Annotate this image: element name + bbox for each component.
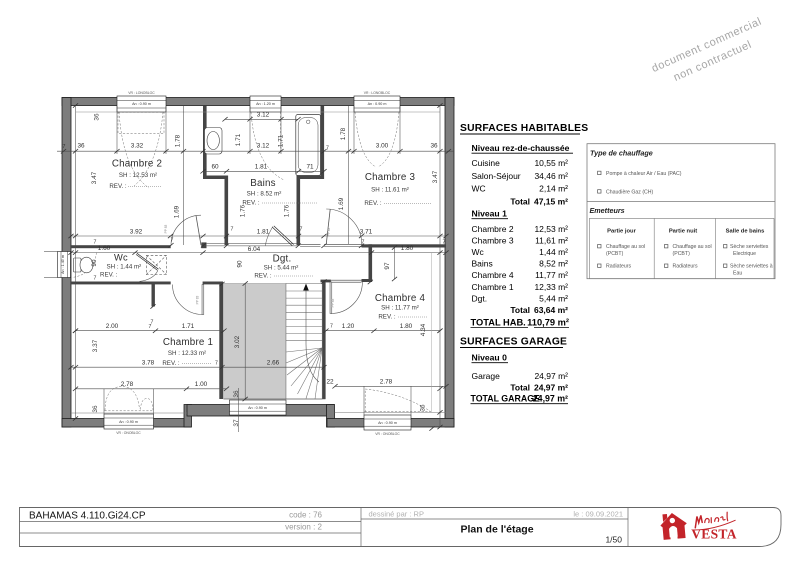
svg-text:36: 36 <box>94 113 101 121</box>
svg-text:Wc: Wc <box>114 253 128 263</box>
svg-text:Chambre 2: Chambre 2 <box>472 224 514 234</box>
svg-text:1.69: 1.69 <box>338 197 345 210</box>
svg-text:36: 36 <box>77 142 85 149</box>
svg-text:version : 2: version : 2 <box>285 523 322 532</box>
svg-text:SH : 12.53 m²: SH : 12.53 m² <box>119 172 157 179</box>
svg-text:Type de chauffage: Type de chauffage <box>590 149 653 158</box>
svg-text:Salle de bains: Salle de bains <box>726 229 765 235</box>
svg-text:VR : LONOBLOC: VR : LONOBLOC <box>364 91 391 95</box>
svg-text:24,97 m²: 24,97 m² <box>533 394 568 404</box>
svg-text:12,33 m²: 12,33 m² <box>534 282 568 292</box>
svg-text:12,53 m²: 12,53 m² <box>534 224 568 234</box>
svg-text:le : 09.09.2021: le : 09.09.2021 <box>573 510 623 519</box>
svg-text:PP 83: PP 83 <box>196 295 200 304</box>
svg-text:3.02: 3.02 <box>234 335 241 348</box>
svg-text:90: 90 <box>91 259 98 267</box>
svg-text:Chauffage au sol: Chauffage au sol <box>606 244 645 250</box>
svg-text:An : 0.90 m: An : 0.90 m <box>119 420 138 424</box>
svg-text:Total: Total <box>510 196 530 206</box>
svg-text:BAHAMAS 4.110.Gi24.CP: BAHAMAS 4.110.Gi24.CP <box>29 511 146 522</box>
svg-text:An : 1.40 m: An : 1.40 m <box>61 255 65 274</box>
svg-text:PP 83: PP 83 <box>164 224 168 233</box>
svg-text:6.04: 6.04 <box>248 246 261 253</box>
svg-text:Radiateurs: Radiateurs <box>606 264 631 270</box>
svg-text:1,44 m²: 1,44 m² <box>539 247 568 257</box>
svg-text:Sèche serviettes à: Sèche serviettes à <box>730 264 773 270</box>
svg-text:3.12: 3.12 <box>257 112 270 119</box>
svg-text:Salon-Séjour: Salon-Séjour <box>472 171 521 181</box>
svg-text:2.66: 2.66 <box>267 359 280 366</box>
svg-text:Chambre 2: Chambre 2 <box>112 159 162 170</box>
svg-text:TOTAL GARAGE: TOTAL GARAGE <box>471 394 541 404</box>
svg-text:90: 90 <box>237 260 244 268</box>
svg-text:36: 36 <box>233 390 240 398</box>
svg-text:2.78: 2.78 <box>380 379 393 386</box>
svg-text:Plan de l'étage: Plan de l'étage <box>460 524 533 536</box>
svg-text:VR : ONOBLOC: VR : ONOBLOC <box>116 431 141 435</box>
svg-text:36: 36 <box>420 404 427 412</box>
svg-text:3.12: 3.12 <box>257 142 270 149</box>
svg-text:36: 36 <box>92 405 99 413</box>
svg-text:1.69: 1.69 <box>174 205 181 218</box>
svg-text:REV. :: REV. : <box>242 200 260 207</box>
svg-text:34,46 m²: 34,46 m² <box>534 171 568 181</box>
svg-text:7: 7 <box>215 360 218 366</box>
svg-text:11,61 m²: 11,61 m² <box>535 235 568 245</box>
svg-text:VR : ONOBLOC: VR : ONOBLOC <box>375 432 400 436</box>
svg-text:36: 36 <box>430 142 438 149</box>
svg-text:Chambre 4: Chambre 4 <box>375 293 426 304</box>
svg-text:Radiateurs: Radiateurs <box>673 264 698 270</box>
svg-text:SURFACES GARAGE: SURFACES GARAGE <box>460 337 567 348</box>
svg-text:1.78: 1.78 <box>175 134 182 147</box>
svg-text:37: 37 <box>233 419 240 427</box>
svg-text:(PCBT): (PCBT) <box>606 251 624 257</box>
svg-text:SH : 12.33 m²: SH : 12.33 m² <box>168 350 206 357</box>
svg-text:7: 7 <box>300 227 303 233</box>
svg-text:PP 83: PP 83 <box>327 227 331 236</box>
svg-text:Bains: Bains <box>250 178 276 189</box>
svg-text:1.71: 1.71 <box>278 134 285 147</box>
svg-text:(PCBT): (PCBT) <box>673 251 691 257</box>
svg-text:code : 76: code : 76 <box>289 511 322 520</box>
svg-text:Partie jour: Partie jour <box>607 229 636 235</box>
svg-text:1.00: 1.00 <box>195 381 208 388</box>
svg-text:1/50: 1/50 <box>605 535 622 545</box>
svg-text:TOTAL HAB.: TOTAL HAB. <box>471 317 526 327</box>
svg-text:3.71: 3.71 <box>360 228 373 235</box>
svg-text:7: 7 <box>326 146 329 152</box>
svg-text:Total: Total <box>510 383 530 393</box>
svg-text:Chambre 4: Chambre 4 <box>472 270 514 280</box>
svg-text:24,97 m²: 24,97 m² <box>534 371 568 381</box>
svg-text:3.47: 3.47 <box>91 171 98 184</box>
svg-text:110,79 m²: 110,79 m² <box>527 317 569 327</box>
svg-text:10,55 m²: 10,55 m² <box>534 158 568 168</box>
svg-text:REV. :: REV. : <box>100 272 118 279</box>
svg-text:63,64 m²: 63,64 m² <box>534 305 568 315</box>
svg-text:4.34: 4.34 <box>420 323 427 336</box>
svg-text:7: 7 <box>63 144 66 150</box>
svg-text:Dgt.: Dgt. <box>472 293 488 303</box>
svg-text:7: 7 <box>362 240 365 246</box>
svg-text:3.92: 3.92 <box>130 228 143 235</box>
svg-text:7: 7 <box>151 320 154 326</box>
svg-text:Eau: Eau <box>733 271 742 277</box>
svg-text:7: 7 <box>94 276 97 282</box>
svg-text:REV. :: REV. : <box>162 360 180 367</box>
svg-text:1.80: 1.80 <box>401 245 414 252</box>
svg-text:Chambre 3: Chambre 3 <box>365 172 416 183</box>
svg-text:Sèche serviettes: Sèche serviettes <box>730 244 769 250</box>
svg-text:5,44 m²: 5,44 m² <box>539 293 568 303</box>
svg-text:Partie nuit: Partie nuit <box>669 229 697 235</box>
svg-text:3.37: 3.37 <box>92 339 99 352</box>
svg-text:Pompe à chaleur Air / Eau (PAC: Pompe à chaleur Air / Eau (PAC) <box>606 171 682 177</box>
svg-text:Dgt.: Dgt. <box>273 254 292 265</box>
svg-text:22: 22 <box>326 379 334 386</box>
svg-text:SURFACES HABITABLES: SURFACES HABITABLES <box>460 123 588 134</box>
svg-text:3.78: 3.78 <box>142 359 155 366</box>
svg-text:1.78: 1.78 <box>340 127 347 140</box>
svg-text:60: 60 <box>211 164 219 171</box>
svg-text:An : 0.90 m: An : 0.90 m <box>378 421 397 425</box>
svg-text:1.20: 1.20 <box>342 323 355 330</box>
svg-text:Emetteurs: Emetteurs <box>590 206 625 215</box>
svg-text:Chambre 1: Chambre 1 <box>472 282 514 292</box>
svg-text:1.80: 1.80 <box>400 323 413 330</box>
svg-text:REV. :: REV. : <box>254 273 272 280</box>
svg-text:7: 7 <box>330 324 333 330</box>
svg-text:Cuisine: Cuisine <box>472 158 501 168</box>
svg-text:3.00: 3.00 <box>376 142 389 149</box>
svg-text:2,14 m²: 2,14 m² <box>539 183 568 193</box>
svg-text:SH : 5.44 m²: SH : 5.44 m² <box>264 265 299 272</box>
svg-text:11,77 m²: 11,77 m² <box>535 270 568 280</box>
svg-text:Bains: Bains <box>472 259 493 269</box>
svg-text:3.32: 3.32 <box>131 142 144 149</box>
svg-text:71: 71 <box>306 164 314 171</box>
svg-text:1.71: 1.71 <box>235 133 242 146</box>
svg-text:SH : 8.52 m²: SH : 8.52 m² <box>247 191 282 198</box>
svg-text:SH : 11.61 m²: SH : 11.61 m² <box>371 187 409 194</box>
svg-text:REV. :: REV. : <box>109 183 127 190</box>
svg-text:8,52 m²: 8,52 m² <box>539 259 568 269</box>
svg-text:1.81: 1.81 <box>255 164 268 171</box>
svg-text:An : 0.90 m: An : 0.90 m <box>368 102 387 106</box>
svg-text:An : 0.90 m: An : 0.90 m <box>132 102 151 106</box>
svg-text:SH : 11.77 m²: SH : 11.77 m² <box>381 305 419 312</box>
svg-text:VR : LONOBLOC: VR : LONOBLOC <box>128 91 155 95</box>
svg-text:2.78: 2.78 <box>121 381 134 388</box>
svg-text:SH : 1.44 m²: SH : 1.44 m² <box>107 264 142 271</box>
svg-text:An : 1.20 m: An : 1.20 m <box>256 102 275 106</box>
svg-text:VESTA: VESTA <box>691 527 737 542</box>
svg-text:3.47: 3.47 <box>432 170 439 183</box>
svg-text:24,97 m²: 24,97 m² <box>534 383 568 393</box>
svg-text:Niveau 0: Niveau 0 <box>472 353 508 363</box>
svg-text:An : 0.90 m: An : 0.90 m <box>248 406 267 410</box>
svg-text:Chauffage au sol: Chauffage au sol <box>673 244 712 250</box>
svg-text:7: 7 <box>94 240 97 246</box>
svg-text:7: 7 <box>231 227 234 233</box>
svg-text:47,15 m²: 47,15 m² <box>534 196 568 206</box>
svg-text:Chaudière Gaz (CH): Chaudière Gaz (CH) <box>606 190 654 196</box>
svg-text:97: 97 <box>384 262 391 270</box>
svg-text:1.81: 1.81 <box>257 228 270 235</box>
svg-text:Electrique: Electrique <box>733 251 756 257</box>
svg-text:1.71: 1.71 <box>182 323 195 330</box>
svg-text:7: 7 <box>443 240 446 246</box>
svg-text:Total: Total <box>510 305 530 315</box>
svg-text:REV. :: REV. : <box>364 200 382 207</box>
svg-text:Wc: Wc <box>472 247 485 257</box>
svg-text:2.00: 2.00 <box>106 323 119 330</box>
svg-text:Chambre 1: Chambre 1 <box>163 337 213 348</box>
svg-text:PP 83: PP 83 <box>331 298 335 307</box>
svg-text:1.60: 1.60 <box>98 245 111 252</box>
svg-text:Chambre 3: Chambre 3 <box>472 235 514 245</box>
svg-text:7: 7 <box>171 238 174 244</box>
svg-text:Niveau 1: Niveau 1 <box>472 209 508 219</box>
svg-text:dessiné par : RP: dessiné par : RP <box>369 510 424 519</box>
svg-text:WC: WC <box>472 183 486 193</box>
svg-text:REV. :: REV. : <box>378 314 396 321</box>
svg-text:Garage: Garage <box>472 371 501 381</box>
svg-text:Niveau rez-de-chaussée: Niveau rez-de-chaussée <box>472 143 570 153</box>
svg-text:1.76: 1.76 <box>284 204 291 217</box>
